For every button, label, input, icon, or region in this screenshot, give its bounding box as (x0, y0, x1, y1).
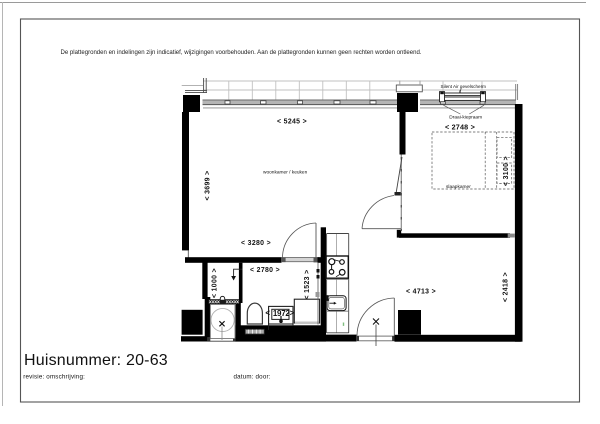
svg-text:Huisnummer: 20-63: Huisnummer: 20-63 (24, 352, 168, 369)
svg-text:De plattegronden en indelingen: De plattegronden en indelingen zijn indi… (61, 50, 422, 56)
svg-text:slaapkamer: slaapkamer (446, 184, 471, 190)
svg-text:< 1000 >: < 1000 > (211, 268, 218, 298)
svg-text:Draai-kiepraam: Draai-kiepraam (449, 114, 482, 120)
svg-text:Silent Air gevelscherm: Silent Air gevelscherm (441, 84, 487, 89)
svg-text:< 3280 >: < 3280 > (241, 240, 271, 247)
svg-text:< 4713 >: < 4713 > (406, 288, 436, 295)
svg-text:< 2418 >: < 2418 > (502, 272, 509, 302)
svg-text:revisie: omschrijving:: revisie: omschrijving: (23, 373, 85, 380)
svg-text:1972: 1972 (273, 309, 290, 318)
svg-text:< 3699 >: < 3699 > (204, 170, 211, 200)
svg-text:woonkamer / keuken: woonkamer / keuken (263, 169, 308, 175)
svg-text:< 2780 >: < 2780 > (250, 267, 280, 274)
svg-text:<: < (265, 308, 270, 317)
svg-text:< 2748 >: < 2748 > (445, 122, 475, 131)
svg-text:< 5245 >: < 5245 > (277, 119, 307, 126)
svg-text:datum: door:: datum: door: (234, 373, 271, 380)
svg-text:< 3100 >: < 3100 > (503, 156, 510, 186)
svg-text:< 1523 >: < 1523 > (304, 269, 311, 299)
